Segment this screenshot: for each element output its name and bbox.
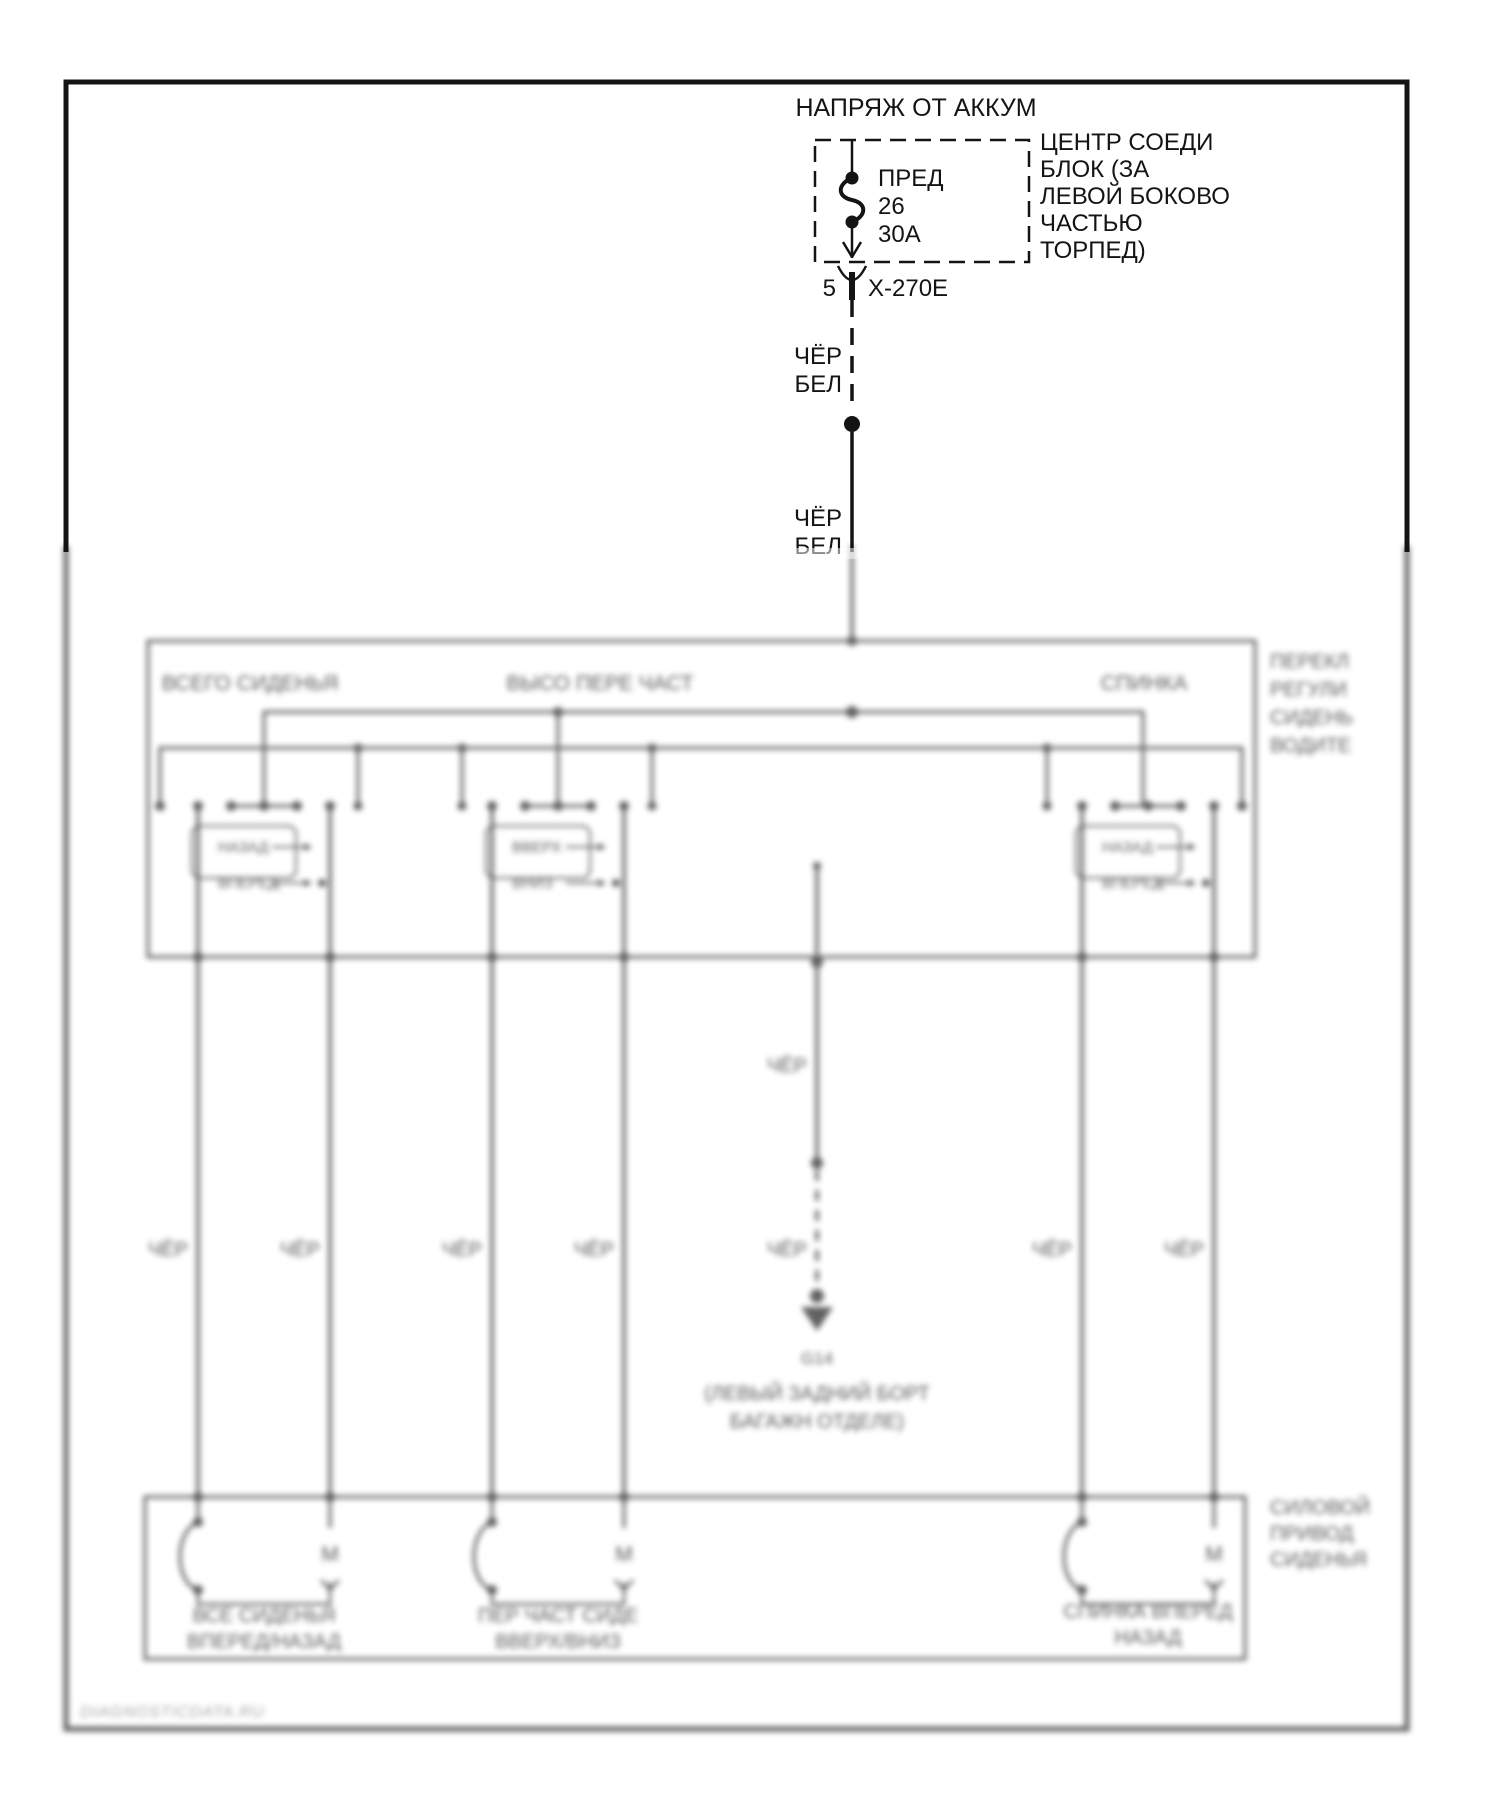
blur-boundary-smear: [768, 548, 860, 559]
switch-pos-label: ВПЕРЕД: [218, 875, 279, 892]
switch-section-label: ВЫСО ПЕРЕ ЧАСТ: [506, 672, 693, 695]
power-source-label: НАПРЯЖ ОТ АККУМ: [795, 94, 1036, 122]
ground-location: (ЛЕВЫЙ ЗАДНИЙ БОРТ: [704, 1381, 930, 1405]
motor-label: НАЗАД: [1114, 1627, 1182, 1649]
junction-dot: [354, 744, 363, 753]
wire-color-label: ЧЁР: [442, 1239, 482, 1261]
splice-dot: [844, 416, 860, 432]
junction-dot: [648, 802, 657, 811]
wire-color-label: ЧЁР: [1032, 1239, 1072, 1261]
switch-pos-label: ВПЕРЕД: [1102, 875, 1163, 892]
wire-color-label: ЧЁР: [767, 1055, 807, 1077]
junction-dot: [846, 706, 858, 718]
junction-dot: [648, 744, 657, 753]
junction-dot: [1237, 801, 1247, 811]
switch-unit-label: ПЕРЕКЛ РЕГУЛИ СИДЕНЬ ВОДИТЕ: [1270, 651, 1353, 757]
motor-assembly-seat-fwd-back: M ВСЕ СИДЕНЬЯ ВПЕРЕД/НАЗАД: [180, 1497, 354, 1653]
fuse-26: ПРЕД 26 30А: [841, 140, 944, 258]
svg-text:СИДЕНЬЯ: СИДЕНЬЯ: [1270, 1549, 1367, 1571]
motor-winding-arc: [474, 1522, 492, 1590]
svg-text:ТОРПЕД): ТОРПЕД): [1040, 237, 1146, 264]
switch-group-recline: НАЗАД ВПЕРЕД: [1076, 801, 1219, 892]
fuse-number: 26: [878, 193, 905, 220]
motor-label: ВСЕ СИДЕНЬЯ: [193, 1605, 336, 1627]
switch-group-seat-fwd-back: НАЗАД ВПЕРЕД: [192, 801, 335, 892]
wiring-diagram-page: ВСЕГО СИДЕНЬЯ ВЫСО ПЕРЕ ЧАСТ СПИНКА: [0, 0, 1500, 1814]
wire-color-label: ЧЁР: [280, 1239, 320, 1261]
motor-symbol: M: [321, 1543, 339, 1566]
blurred-lower-section: ВСЕГО СИДЕНЬЯ ВЫСО ПЕРЕ ЧАСТ СПИНКА: [66, 546, 1407, 1729]
switch-pos-label: НАЗАД: [1102, 839, 1152, 856]
ground-wire: ЧЁР ЧЁР G14 (ЛЕВЫЙ ЗАДНИЙ БОРТ БАГАЖН ОТ…: [704, 862, 930, 1433]
fuse-name: ПРЕД: [878, 165, 944, 192]
connector-pin: 5: [823, 275, 836, 302]
wire-color-label: БЕЛ: [794, 371, 842, 398]
wire-color-label: ЧЁР: [794, 343, 842, 370]
svg-text:СИДЕНЬ: СИДЕНЬ: [1270, 707, 1353, 729]
svg-text:ВОДИТЕ: ВОДИТЕ: [1270, 735, 1351, 757]
motor-symbol: M: [1205, 1543, 1223, 1566]
drop-wires: ЧЁР ЧЁР ЧЁР ЧЁР ЧЁР ЧЁР: [148, 806, 1219, 1502]
ground-symbol: [801, 1307, 833, 1331]
fuse-element-symbol: [841, 178, 864, 222]
sharp-top-section: НАПРЯЖ ОТ АККУМ ПРЕД 26 30А ЦЕНТР СОЕДИ …: [66, 82, 1407, 560]
motor-assembly-front-up-down: M ПЕР ЧАСТ СИДЕ ВВЕРХ/ВНИЗ: [474, 1497, 648, 1653]
junction-block-box: [815, 140, 1029, 262]
ground-id: G14: [801, 1349, 833, 1368]
motor-assembly-recline: M СПИНКА ВПЕРЕД НАЗАД: [1063, 1497, 1238, 1649]
svg-text:РЕГУЛИ: РЕГУЛИ: [1270, 679, 1347, 701]
wire-color-label: ЧЁР: [574, 1239, 614, 1261]
junction-dot: [458, 802, 467, 811]
switch-pos-label: ВНИЗ: [512, 875, 553, 892]
motor-label: ПЕР ЧАСТ СИДЕ: [478, 1605, 638, 1627]
junction-dot: [354, 802, 363, 811]
bus-b: [160, 748, 1242, 806]
svg-text:ЧАСТЬЮ: ЧАСТЬЮ: [1040, 210, 1143, 237]
svg-text:БЛОК (ЗА: БЛОК (ЗА: [1040, 156, 1149, 183]
motor-winding-arc: [1064, 1522, 1082, 1590]
junction-dot: [553, 707, 563, 717]
motor-label: СПИНКА ВПЕРЕД: [1063, 1601, 1233, 1623]
connector-x270e: 5 X-270E: [823, 266, 948, 302]
wire-color-label: ЧЁР: [767, 1239, 807, 1261]
wire-color-label: ЧЁР: [794, 505, 842, 532]
svg-text:ЛЕВОЙ БОКОВО: ЛЕВОЙ БОКОВО: [1040, 182, 1230, 210]
junction-dot: [1043, 744, 1052, 753]
wire-color-label: ЧЁР: [1164, 1239, 1204, 1261]
motor-unit-label: СИЛОВОЙ ПРИВОД СИДЕНЬЯ: [1270, 1495, 1370, 1571]
junction-block-label: ЦЕНТР СОЕДИ БЛОК (ЗА ЛЕВОЙ БОКОВО ЧАСТЬЮ…: [1040, 129, 1230, 264]
motor-label: ВВЕРХ/ВНИЗ: [495, 1631, 621, 1653]
connector-id: X-270E: [868, 275, 948, 302]
wire-color-label: ЧЁР: [148, 1239, 188, 1261]
svg-text:ЦЕНТР СОЕДИ: ЦЕНТР СОЕДИ: [1040, 129, 1213, 156]
junction-dot: [458, 744, 467, 753]
ground-location: БАГАЖН ОТДЕЛЕ): [730, 1411, 904, 1433]
svg-text:ПРИВОД: ПРИВОД: [1270, 1523, 1354, 1545]
junction-dot: [155, 801, 165, 811]
motor-label: ВПЕРЕД/НАЗАД: [187, 1631, 341, 1653]
switch-section-label: ВСЕГО СИДЕНЬЯ: [162, 672, 339, 695]
svg-text:СИЛОВОЙ: СИЛОВОЙ: [1270, 1495, 1370, 1519]
wiring-diagram: ВСЕГО СИДЕНЬЯ ВЫСО ПЕРЕ ЧАСТ СПИНКА: [0, 0, 1500, 1814]
switch-pos-label: ВВЕРХ: [512, 839, 561, 856]
switch-pos-label: НАЗАД: [218, 839, 268, 856]
junction-dot: [847, 636, 857, 646]
switch-group-front-up-down: ВВЕРХ ВНИЗ: [486, 801, 629, 892]
motor-winding-arc: [180, 1522, 198, 1590]
fuse-rating: 30А: [878, 221, 921, 248]
switch-section-label: СПИНКА: [1101, 672, 1188, 695]
watermark: DIAGNOSTICDATA.RU: [80, 1704, 264, 1721]
motor-symbol: M: [615, 1543, 633, 1566]
bus-a: [264, 712, 1143, 806]
junction-dot: [1043, 802, 1052, 811]
svg-text:ПЕРЕКЛ: ПЕРЕКЛ: [1270, 651, 1349, 673]
